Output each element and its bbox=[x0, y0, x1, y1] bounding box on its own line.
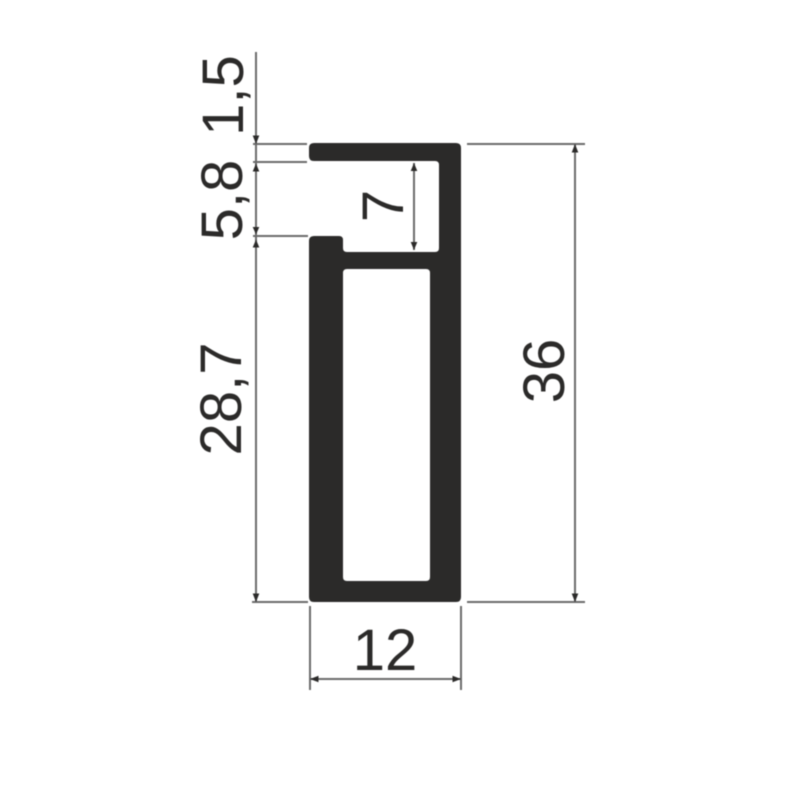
svg-text:5,8: 5,8 bbox=[190, 160, 255, 241]
svg-text:1,5: 1,5 bbox=[191, 55, 256, 136]
svg-text:12: 12 bbox=[353, 618, 418, 683]
svg-text:7: 7 bbox=[351, 190, 416, 222]
svg-text:28,7: 28,7 bbox=[189, 343, 254, 456]
svg-text:36: 36 bbox=[512, 339, 577, 404]
